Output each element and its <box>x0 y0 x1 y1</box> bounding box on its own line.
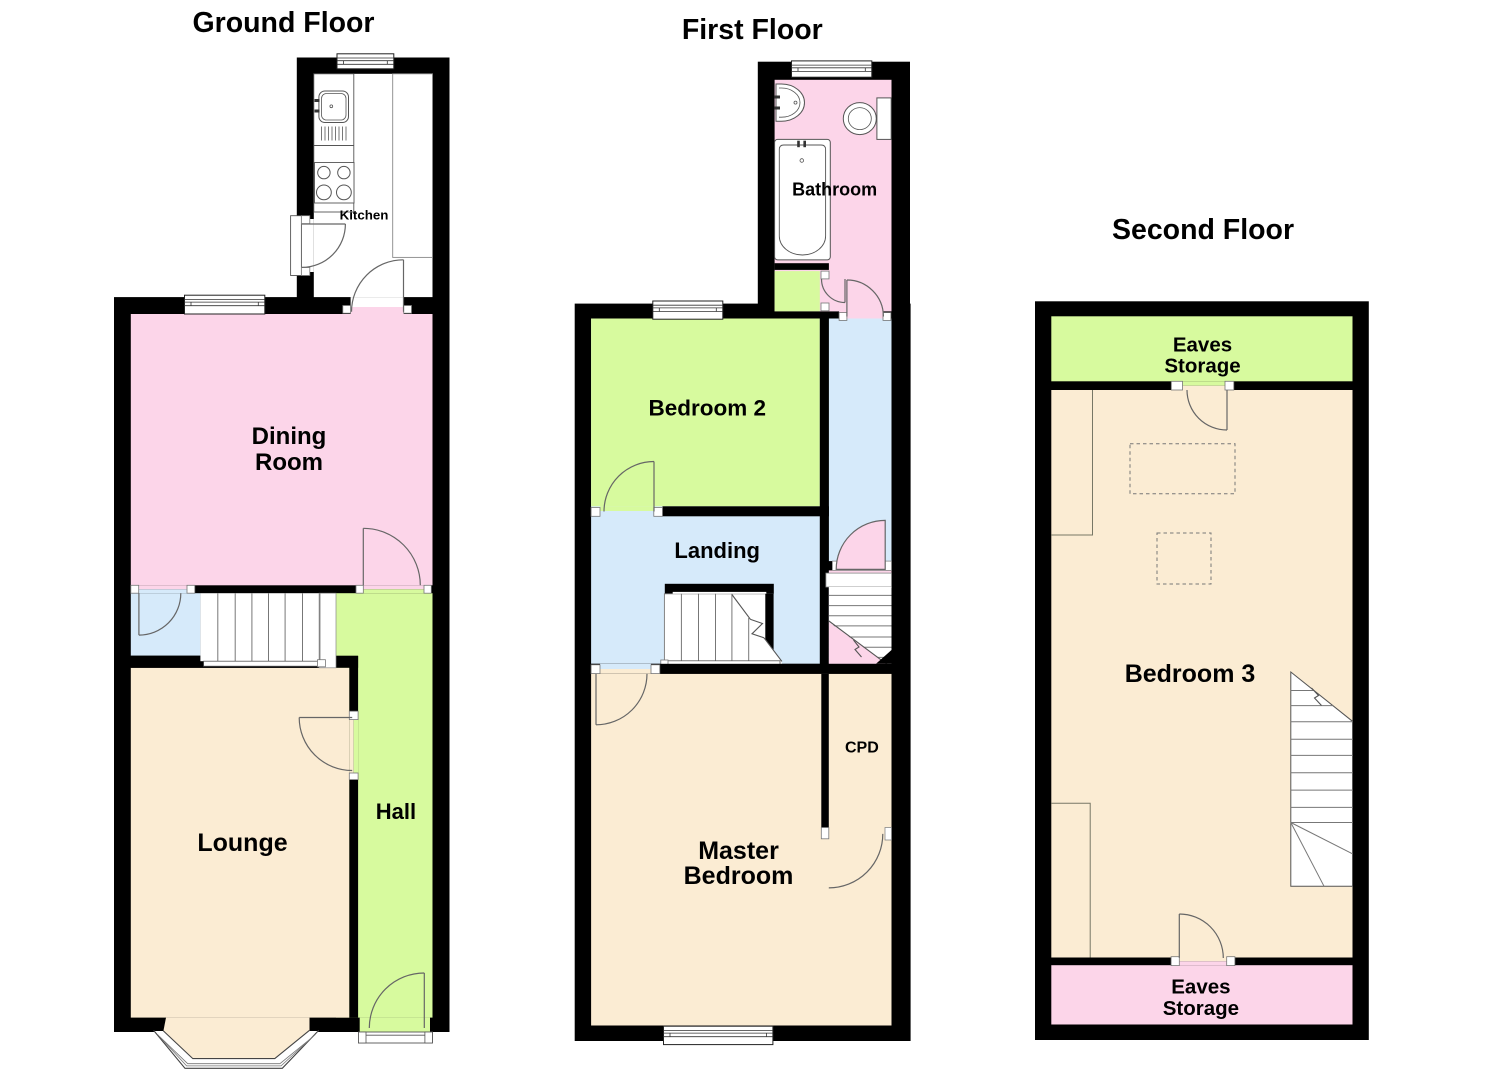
svg-text:Lounge: Lounge <box>197 829 287 857</box>
svg-text:Landing: Landing <box>674 538 760 563</box>
svg-text:Second Floor: Second Floor <box>1112 214 1294 246</box>
svg-text:Ground Floor: Ground Floor <box>192 7 374 39</box>
svg-text:Bedroom 2: Bedroom 2 <box>649 395 767 420</box>
svg-text:EavesStorage: EavesStorage <box>1164 333 1240 377</box>
svg-text:Kitchen: Kitchen <box>340 208 389 223</box>
svg-text:EavesStorage: EavesStorage <box>1163 975 1239 1020</box>
svg-text:First Floor: First Floor <box>682 14 823 46</box>
svg-text:CPD: CPD <box>845 740 879 757</box>
svg-text:Bathroom: Bathroom <box>792 180 877 200</box>
svg-text:Hall: Hall <box>376 799 416 824</box>
svg-text:Bedroom 3: Bedroom 3 <box>1125 660 1256 688</box>
svg-text:DiningRoom: DiningRoom <box>252 423 327 476</box>
svg-text:MasterBedroom: MasterBedroom <box>684 837 794 890</box>
